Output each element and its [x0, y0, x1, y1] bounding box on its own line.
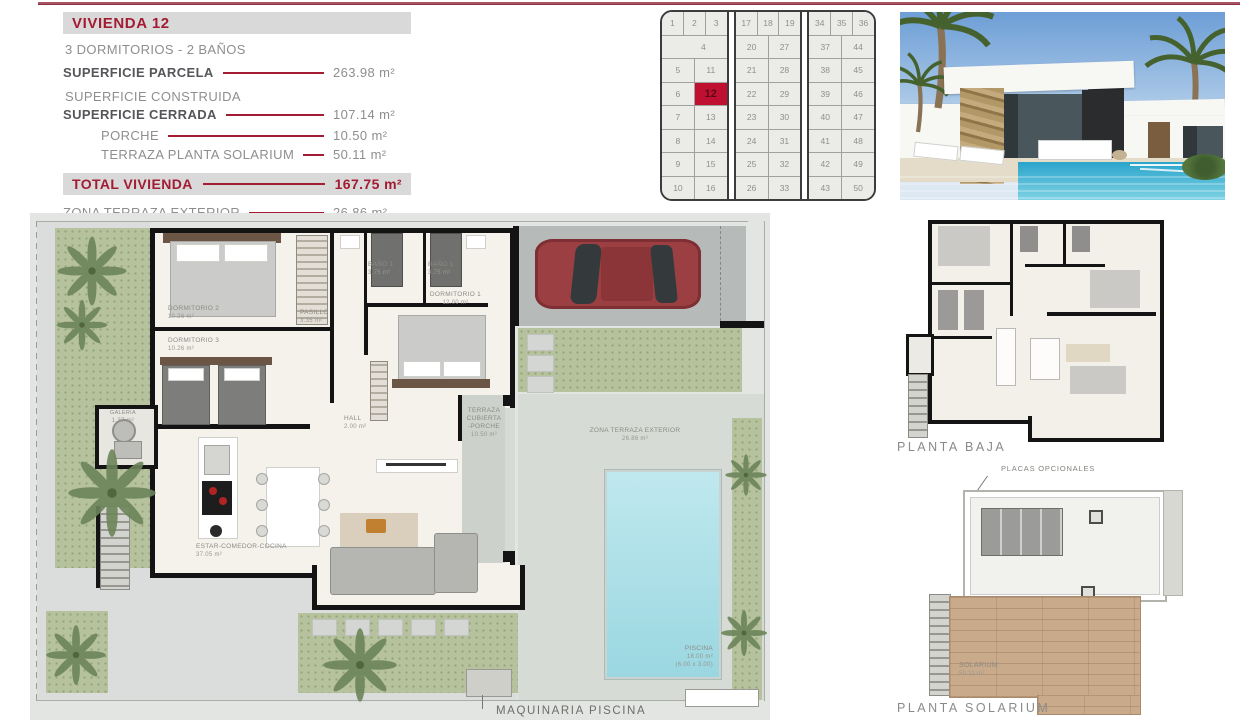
site-row: 1016 — [662, 176, 727, 200]
room-label-hall: HALL 2.00 m² — [344, 415, 366, 431]
mini-kitchen-island — [996, 328, 1016, 386]
site-cell: 1 — [662, 12, 683, 35]
spec-row-porche: PORCHE 10.50 m² — [63, 127, 411, 144]
leader-line — [223, 72, 324, 74]
site-row: 4350 — [809, 176, 874, 200]
mini-sofa — [1070, 366, 1126, 394]
site-cell: 43 — [809, 177, 841, 200]
mini-dining-table — [1030, 338, 1060, 380]
site-cell: 46 — [841, 83, 874, 106]
chair — [256, 525, 268, 537]
cooktop — [202, 481, 232, 515]
site-cell: 42 — [809, 153, 841, 176]
mini-extension — [1028, 416, 1164, 442]
site-cell: 3 — [705, 12, 727, 35]
site-block: 12345116127138149151016 — [662, 12, 727, 199]
site-plan-grid: 1234511612713814915101617181920272128222… — [660, 10, 876, 201]
site-cell: 20 — [736, 36, 768, 59]
site-cell: 32 — [768, 153, 801, 176]
site-cell: 2 — [683, 12, 705, 35]
site-road — [727, 12, 736, 199]
site-cell: 33 — [768, 177, 801, 200]
site-cell: 14 — [694, 130, 727, 153]
site-cell: 16 — [694, 177, 727, 200]
headboard — [392, 379, 490, 388]
pillow — [168, 368, 204, 381]
site-row: 612 — [662, 82, 727, 106]
solarium-deck — [949, 596, 1141, 698]
chair — [256, 499, 268, 511]
site-road — [800, 12, 809, 199]
mini-shower — [1020, 226, 1038, 252]
site-row: 4047 — [809, 105, 874, 129]
site-cell: 31 — [768, 130, 801, 153]
chair — [318, 525, 330, 537]
cushion — [366, 519, 386, 533]
sofa-chaise — [434, 533, 478, 593]
coffee-table — [1112, 150, 1127, 160]
site-cell: 4 — [662, 36, 727, 59]
placas-label: PLACAS OPCIONALES — [1001, 464, 1095, 473]
chair — [318, 499, 330, 511]
wall-segment — [1047, 312, 1156, 316]
site-cell: 24 — [736, 130, 768, 153]
tv-sideboard — [376, 459, 458, 473]
spec-row-terraza-solarium: TERRAZA PLANTA SOLARIUM 50.11 m² — [63, 146, 411, 163]
gate-detail — [685, 689, 759, 707]
maquinaria-label: MAQUINARIA PISCINA — [496, 705, 646, 717]
parcel-boundary — [36, 700, 748, 701]
site-cell: 21 — [736, 59, 768, 82]
planta-baja-label: PLANTA BAJA — [897, 440, 1006, 454]
site-block: 3435363744384539464047414842494350 — [809, 12, 874, 199]
pool-machinery-box — [466, 669, 512, 697]
right-garden-strip — [732, 418, 762, 700]
leader-line — [303, 154, 324, 156]
site-cell: 50 — [841, 177, 874, 200]
corner-garden — [46, 611, 108, 693]
site-row: 2532 — [736, 152, 801, 176]
site-cell: 37 — [809, 36, 841, 59]
site-row: 2128 — [736, 58, 801, 82]
stepping-stone — [527, 355, 554, 372]
mini-bed — [1090, 270, 1140, 308]
leader-line — [168, 135, 324, 137]
site-row: 3946 — [809, 82, 874, 106]
roof-side-strip — [1163, 490, 1183, 596]
leader-line — [203, 183, 325, 185]
construida-label: SUPERFICIE CONSTRUIDA — [63, 89, 411, 104]
stool — [210, 525, 222, 537]
leader-line — [226, 114, 324, 116]
room-label-dormitorio-1: DORMITORIO 1 12.00 m² — [408, 291, 503, 307]
foreground-plant — [1182, 154, 1225, 180]
car-roof — [601, 247, 653, 301]
leader-line — [482, 695, 483, 709]
site-cell: 34 — [809, 12, 830, 35]
planta-baja-plan — [900, 216, 1190, 446]
stepping-stone — [312, 619, 337, 636]
room-label-solarium: SOLARIUM 50.11 m² — [959, 662, 998, 678]
site-cell: 48 — [841, 130, 874, 153]
wall-segment — [1010, 224, 1013, 316]
burner — [209, 487, 217, 495]
room-label-galeria: GALERIA 1.37 m² — [99, 409, 147, 425]
stepping-stone — [411, 619, 436, 636]
site-cell: 15 — [694, 153, 727, 176]
room-label-pasillo: PASILLO 3.35 m² — [300, 309, 360, 325]
site-row: 511 — [662, 58, 727, 82]
pool: PISCINA 18.00 m² (6.00 x 3.00) — [605, 470, 721, 679]
site-cell: 18 — [757, 12, 779, 35]
roof-vent — [1089, 510, 1103, 524]
pillow — [176, 244, 220, 262]
wall-segment — [364, 307, 368, 355]
site-cell: 45 — [841, 59, 874, 82]
site-cell: 13 — [694, 106, 727, 129]
site-cell: 19 — [778, 12, 800, 35]
porch-column — [503, 551, 515, 562]
wardrobe — [370, 361, 388, 421]
site-cell: 22 — [736, 83, 768, 106]
villa-photo — [900, 12, 1225, 200]
site-cell: 5 — [662, 59, 694, 82]
site-cell: 49 — [841, 153, 874, 176]
spec-panel: VIVIENDA 12 3 DORMITORIOS - 2 BAÑOS SUPE… — [63, 12, 411, 221]
site-cell: 8 — [662, 130, 694, 153]
room-label-porche: TERRAZA CUBIERTA -PORCHE 10.50 m² — [458, 407, 510, 439]
car-rear-glass — [650, 245, 678, 303]
car — [535, 239, 701, 309]
exterior-stairs — [100, 506, 130, 590]
site-row: 915 — [662, 152, 727, 176]
site-cell: 47 — [841, 106, 874, 129]
mini-shower — [1072, 226, 1090, 252]
pool-water-near — [900, 176, 1225, 200]
chair — [256, 473, 268, 485]
outdoor-sofa — [1038, 140, 1112, 160]
site-row: 4 — [662, 35, 727, 59]
site-row: 814 — [662, 129, 727, 153]
parcel-boundary — [764, 221, 765, 701]
site-cell: 7 — [662, 106, 694, 129]
site-row: 4249 — [809, 152, 874, 176]
site-row: 171819 — [736, 12, 801, 35]
mini-bed — [964, 290, 984, 330]
site-row: 3744 — [809, 35, 874, 59]
stepping-stone — [444, 619, 469, 636]
mini-galeria — [906, 334, 934, 376]
top-rule — [38, 2, 1240, 5]
wall-segment — [152, 327, 332, 331]
site-block: 1718192027212822292330243125322633 — [736, 12, 801, 199]
wall-segment — [364, 231, 367, 305]
shower — [371, 233, 403, 287]
site-cell: 29 — [768, 83, 801, 106]
laundry-counter — [114, 441, 142, 459]
main-floor-plan: PISCINA 18.00 m² (6.00 x 3.00) MAQUINARI… — [30, 213, 770, 720]
sofa — [330, 547, 436, 595]
room-label-zona-terraza: ZONA TERRAZA EXTERIOR 26.86 m² — [568, 427, 702, 443]
stepping-stone — [527, 334, 554, 351]
site-cell: 39 — [809, 83, 841, 106]
site-cell: 40 — [809, 106, 841, 129]
sink — [340, 235, 360, 249]
tv — [386, 463, 446, 466]
site-row: 713 — [662, 105, 727, 129]
wall-segment — [1063, 224, 1066, 264]
spec-row-cerrada: SUPERFICIE CERRADA 107.14 m² — [63, 106, 411, 123]
pillow — [403, 361, 441, 377]
site-row: 2633 — [736, 176, 801, 200]
site-row: 123 — [662, 12, 727, 35]
planta-solarium-plan: PLACAS OPCIONALES SOLARIUM 50.11 m² — [925, 462, 1195, 714]
room-label-piscina: PISCINA 18.00 m² (6.00 x 3.00) — [675, 645, 713, 669]
pillow — [443, 361, 481, 377]
site-cell: 44 — [841, 36, 874, 59]
wall-segment — [1025, 264, 1105, 267]
site-cell: 30 — [768, 106, 801, 129]
gate-wall — [720, 321, 764, 328]
room-label-dormitorio-2: DORMITORIO 2 10.26 m² — [168, 305, 219, 321]
room-label-bano-1a: BAÑO 1 3.75 m² — [368, 261, 416, 277]
mini-rug — [1066, 344, 1110, 362]
room-label-dormitorio-3: DORMITORIO 3 10.26 m² — [168, 337, 219, 353]
boundary-wall — [513, 226, 519, 326]
pillow — [224, 368, 260, 381]
site-cell-highlighted: 12 — [694, 83, 727, 106]
site-row: 343536 — [809, 12, 874, 35]
room-label-estar: ESTAR-COMEDOR-COCINA 37.05 m² — [196, 543, 287, 559]
mini-bed — [938, 226, 990, 266]
burner — [219, 497, 227, 505]
driveway-dashed-line — [720, 226, 722, 326]
stepping-stone — [378, 619, 403, 636]
site-cell: 27 — [768, 36, 801, 59]
car-windshield — [570, 244, 602, 304]
mini-stairs — [908, 374, 928, 438]
site-row: 2229 — [736, 82, 801, 106]
site-cell: 6 — [662, 83, 694, 106]
planta-solarium-label: PLANTA SOLARIUM — [897, 701, 1050, 715]
headboard — [160, 357, 272, 365]
dining-table — [266, 467, 320, 547]
site-cell: 9 — [662, 153, 694, 176]
bedrooms-baths-line: 3 DORMITORIOS - 2 BAÑOS — [63, 42, 411, 57]
sink — [466, 235, 486, 249]
site-cell: 35 — [830, 12, 852, 35]
total-row: TOTAL VIVIENDA 167.75 m² — [63, 173, 411, 195]
shower — [430, 233, 462, 287]
site-cell: 26 — [736, 177, 768, 200]
wall-segment — [932, 336, 992, 339]
stepping-stone — [345, 619, 370, 636]
site-cell: 11 — [694, 59, 727, 82]
site-cell: 25 — [736, 153, 768, 176]
pillow — [224, 244, 268, 262]
site-cell: 17 — [736, 12, 757, 35]
mini-bed — [938, 290, 958, 330]
site-cell: 38 — [809, 59, 841, 82]
site-cell: 28 — [768, 59, 801, 82]
page-title: VIVIENDA 12 — [63, 12, 411, 34]
site-row: 2330 — [736, 105, 801, 129]
chair — [318, 473, 330, 485]
room-label-bano-1b: BAÑO 1 3.75 m² — [428, 261, 476, 277]
site-row: 3845 — [809, 58, 874, 82]
site-cell: 36 — [852, 12, 874, 35]
site-cell: 23 — [736, 106, 768, 129]
porch-column — [503, 395, 515, 406]
solarium-deck-step — [1037, 695, 1141, 715]
site-cell: 41 — [809, 130, 841, 153]
solar-panels — [981, 508, 1063, 556]
site-map-blocks: 1234511612713814915101617181920272128222… — [662, 12, 874, 199]
wall-segment — [932, 282, 1010, 285]
site-row: 2027 — [736, 35, 801, 59]
spec-row-parcela: SUPERFICIE PARCELA 263.98 m² — [63, 64, 411, 81]
site-row: 2431 — [736, 129, 801, 153]
kitchen-sink — [204, 445, 230, 475]
site-row: 4148 — [809, 129, 874, 153]
site-cell: 10 — [662, 177, 694, 200]
solarium-stairs — [929, 594, 951, 696]
stepping-stone — [527, 376, 554, 393]
